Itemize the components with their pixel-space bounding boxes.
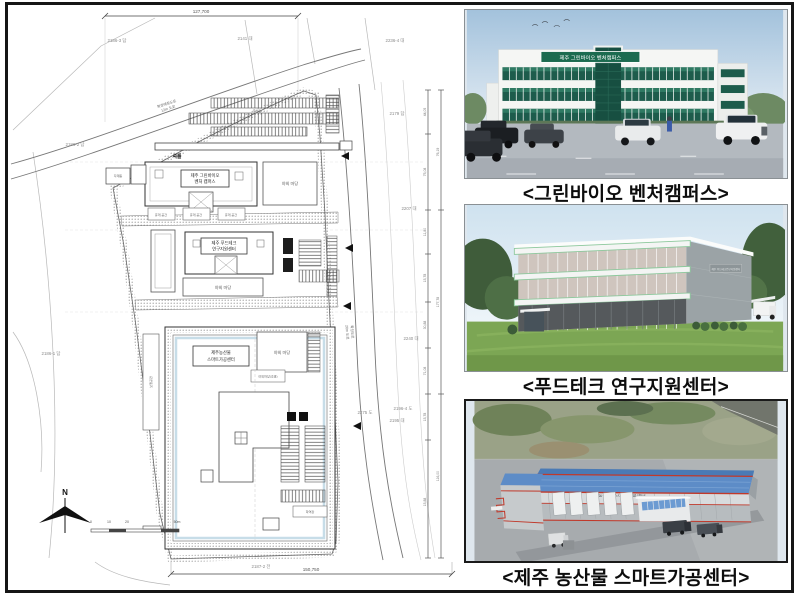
building: 제주 푸드테크연구지원센터	[514, 237, 776, 332]
parking-row	[281, 490, 325, 502]
dock-label: 하역장	[306, 509, 315, 514]
right-road-label: 확장도로 20m 도로	[345, 324, 356, 340]
smart-processing-render: 제주 농산물 스마트가공센터	[464, 399, 788, 563]
yard2-label: 야외 마당	[215, 284, 231, 290]
parcel-label: 2186-3 답	[108, 37, 127, 43]
zone-smart-processing: 야외 마당 제주농산물 스마트가공센터 야외마당(조경) 보행공간 하역장	[143, 302, 361, 549]
parcel-label: 2195 대	[389, 417, 404, 424]
dim-seg: 15,78	[423, 274, 427, 283]
dim-seg: 76,19	[436, 148, 440, 157]
dim-seg: 116,00	[436, 471, 440, 481]
road2-name: 확장도로	[350, 325, 356, 339]
building1-name-line2: 벤처 캠퍼스	[195, 178, 216, 185]
utility-box	[299, 412, 308, 421]
entry-arrow	[343, 302, 351, 310]
building-facade: 제주 그린바이오 벤처캠퍼스	[487, 46, 748, 125]
parcel-label: 2187-2 전	[252, 563, 271, 569]
north-label: N	[62, 488, 68, 497]
north-arrow: N	[39, 488, 91, 533]
road2-width: 20m 도로	[345, 325, 350, 341]
lawn-foreground	[467, 355, 783, 371]
parking-column	[327, 236, 337, 296]
yard3-label: 야외 마당	[274, 349, 290, 355]
person	[667, 116, 672, 131]
rest-label: 휴게 공간	[155, 212, 167, 217]
parcel-label: 2179 답	[389, 110, 404, 116]
utility-box	[287, 412, 296, 421]
dim-top-label: 127,700	[193, 9, 210, 14]
annex-box	[131, 165, 146, 184]
yard1-label: 야외 마당	[282, 180, 298, 186]
caption-foodtech: <푸드테크 연구지원센터>	[464, 377, 788, 398]
dim-seg: 15,88	[423, 498, 427, 507]
building-sign-text: 제주 그린바이오 벤처캠퍼스	[560, 53, 622, 61]
building1-name-line1: 제주 그린바이오	[191, 172, 220, 179]
building3-name-line2: 스마트가공센터	[207, 356, 235, 363]
rest-label: 휴게 공간	[225, 212, 237, 217]
building3-label-box	[193, 346, 249, 366]
right-dimension-chain: 44,05 76,19 75,08 11,80 15,78 30,88 71,0…	[423, 90, 444, 558]
parcel-label: 2275 도	[357, 410, 372, 415]
dim-seg: 71,08	[423, 367, 427, 376]
building3-name-line1: 제주농산물	[211, 349, 231, 356]
photo-card-green-bio: 제주 그린바이오 벤처캠퍼스	[464, 9, 788, 205]
rest-label: 휴게 공간	[190, 212, 202, 217]
caption-smart-processing: <제주 농산물 스마트가공센터>	[464, 568, 788, 589]
parking-label: 주차장	[253, 108, 262, 113]
green-bio-render: 제주 그린바이오 벤처캠퍼스	[464, 9, 788, 179]
parcel-label: 2207 대	[401, 205, 416, 212]
parking-column	[305, 426, 325, 482]
parking-column	[308, 332, 320, 372]
shuttle-label: 셔틀	[172, 153, 182, 160]
dim-seg: 177,78	[436, 297, 440, 307]
scale-tick: 0	[90, 520, 92, 524]
dim-seg: 11,80	[423, 228, 427, 236]
upper-road-label: 확장예정도로 12m 도로	[156, 98, 179, 114]
scale-tick: 20	[125, 520, 129, 524]
scale-tick: 10	[107, 520, 111, 524]
bottom-dimension: 150,750	[168, 562, 455, 577]
dim-seg: 30,88	[423, 321, 427, 330]
caption-green-bio: <그린바이오 벤처캠퍼스>	[464, 184, 788, 205]
building2-name-line2: 연구지원센터	[212, 246, 236, 253]
photo-card-smart-processing: 제주 농산물 스마트가공센터	[464, 399, 788, 589]
parcel-label: 2196-4 도	[394, 406, 413, 411]
right-road	[339, 80, 435, 560]
parcel-label: 2236-4 대	[386, 37, 405, 44]
road-front	[467, 158, 783, 178]
hedge	[497, 121, 724, 124]
parking-column	[299, 240, 321, 266]
foodtech-render: 제주 푸드테크연구지원센터	[464, 204, 788, 372]
site-plan-svg: 127,700 확장예정도로 12m 도로 확장도로 20m 도로 2186-3…	[10, 6, 462, 588]
side-sign-text: 제주 푸드테크연구지원센터	[711, 267, 740, 271]
parcel-label: 2186-1 답	[42, 350, 61, 356]
parking-column	[326, 95, 339, 133]
parcel-label: 2186-2 답	[66, 141, 85, 147]
gate-box	[340, 141, 352, 150]
dim-bottom-label: 150,750	[303, 567, 320, 572]
entrance-glass	[524, 312, 544, 332]
parcel-label: 2141 대	[237, 35, 252, 42]
site-plan: 127,700 확장예정도로 12m 도로 확장도로 20m 도로 2186-3…	[10, 6, 462, 588]
side-strip	[151, 230, 175, 292]
parking-column	[281, 426, 299, 482]
parcel-label: 2240 대	[403, 335, 418, 342]
photo-card-foodtech: 제주 푸드테크연구지원센터	[464, 204, 788, 398]
walkway-label: 보행공간	[148, 376, 153, 388]
building2-name-line1: 제주 푸드테크	[212, 240, 237, 247]
page-frame: 127,700 확장예정도로 12m 도로 확장도로 20m 도로 2186-3…	[5, 2, 794, 593]
parking-row	[211, 127, 307, 136]
landscape-label: 야외마당(조경)	[258, 374, 277, 379]
entry-arrow	[353, 422, 361, 430]
entry-arrow	[345, 244, 353, 252]
dim-seg: 44,05	[423, 108, 427, 117]
storage-label: 자재동	[114, 173, 123, 178]
dim-seg: 75,08	[423, 168, 427, 177]
parking-row	[189, 113, 338, 124]
utility-box	[283, 258, 293, 272]
scale-tick: 50m	[174, 520, 181, 524]
parking-row	[211, 98, 338, 108]
dim-seg: 15,78	[423, 413, 427, 422]
canopy-strip	[155, 143, 339, 150]
rest-boxes: 휴게 공간 휴게 공간 휴게 공간	[148, 208, 245, 220]
utility-cart	[563, 540, 574, 549]
utility-box	[283, 238, 293, 254]
head-wall	[500, 482, 544, 534]
